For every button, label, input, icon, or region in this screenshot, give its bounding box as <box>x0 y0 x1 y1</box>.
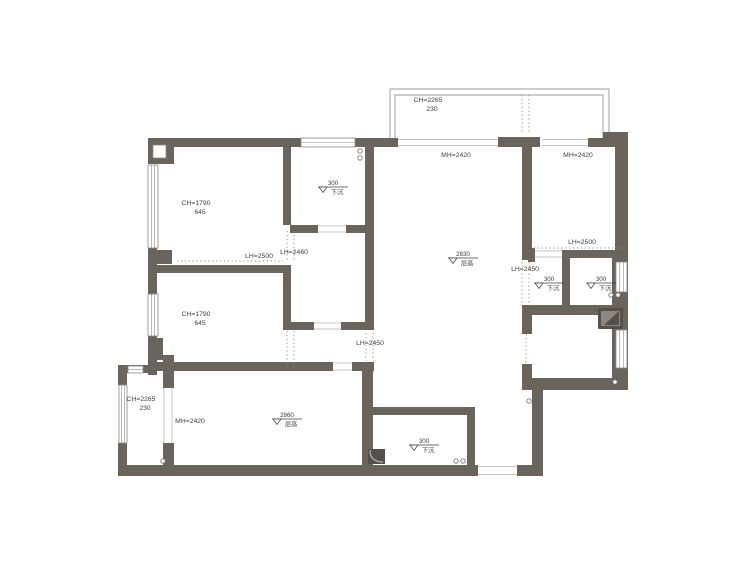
level-mark-caption: 下沉 <box>331 189 344 197</box>
small-circle-marker <box>461 459 465 463</box>
wall <box>532 390 543 465</box>
wall <box>355 138 398 147</box>
level-mark-caption: 下沉 <box>547 285 560 293</box>
level-mark-caption: 层高 <box>285 421 297 429</box>
level-mark-value: 2830 <box>456 251 470 258</box>
wall-niche <box>153 145 166 158</box>
level-mark-value: 300 <box>328 180 339 187</box>
dimension-label: LH=2450 <box>511 266 539 273</box>
wall <box>528 248 535 262</box>
small-circle-marker <box>161 459 165 463</box>
small-circle-marker <box>358 156 362 160</box>
small-circle-marker <box>454 459 458 463</box>
dimension-label: 645 <box>194 209 206 216</box>
wall <box>148 248 157 294</box>
level-mark-triangle-icon <box>319 187 327 193</box>
window <box>148 294 158 336</box>
wall <box>467 415 475 465</box>
wall <box>341 322 374 330</box>
wall <box>283 322 314 330</box>
wall <box>118 465 478 476</box>
level-mark-value: 300 <box>419 438 430 445</box>
wall <box>562 250 570 307</box>
small-circle-marker <box>616 293 620 297</box>
wall <box>157 265 288 273</box>
level-mark-value: 300 <box>544 276 555 283</box>
level-mark-caption: 层高 <box>461 260 473 268</box>
wall <box>365 138 374 330</box>
dimension-label: 645 <box>194 320 206 327</box>
small-circle-marker <box>358 149 362 153</box>
dimension-label: MH=2420 <box>563 152 593 159</box>
level-mark-triangle-icon <box>587 283 595 289</box>
dimension-label: MH=2420 <box>175 418 205 425</box>
window <box>148 165 158 248</box>
dimension-label: LH=2500 <box>568 239 596 246</box>
wall <box>523 378 628 390</box>
small-circle-marker <box>527 399 531 403</box>
small-circle-marker <box>609 293 613 297</box>
small-circle-marker <box>613 380 617 384</box>
wall <box>346 225 366 233</box>
dimension-label: 230 <box>139 405 151 412</box>
wall <box>283 147 291 225</box>
wall <box>373 407 475 415</box>
wall <box>615 132 628 252</box>
wall <box>157 362 333 371</box>
window <box>119 385 127 443</box>
wall <box>498 137 540 147</box>
level-mark-caption: 下沉 <box>422 447 435 455</box>
wall <box>157 250 172 264</box>
level-mark-triangle-icon <box>273 419 281 425</box>
dimension-label: MH=2420 <box>441 152 471 159</box>
level-mark-value: 2860 <box>280 412 294 419</box>
dimension-label: CH=2265 <box>414 97 443 104</box>
dimension-label: LH=2500 <box>245 253 273 260</box>
wall <box>283 265 291 330</box>
floor-plan-canvas: CH=2265230MH=2420MH=2420CH=1790645LH=250… <box>0 0 750 563</box>
level-mark-triangle-icon <box>449 258 457 264</box>
wall <box>588 138 605 147</box>
wall <box>163 355 174 388</box>
wall <box>522 308 532 334</box>
dimension-label: LH=2450 <box>356 340 384 347</box>
floor-plan: CH=2265230MH=2420MH=2420CH=1790645LH=250… <box>0 0 750 563</box>
level-mark-caption: 下沉 <box>599 285 612 293</box>
wall <box>522 137 532 260</box>
dimension-label: 230 <box>426 106 438 113</box>
wall <box>118 365 127 385</box>
level-mark-triangle-icon <box>535 283 543 289</box>
wall <box>148 338 163 360</box>
dimension-label: CH=1790 <box>182 311 211 318</box>
dimension-label: LH=2460 <box>280 249 308 256</box>
dimension-label: CH=2265 <box>127 396 156 403</box>
window <box>616 262 627 292</box>
level-mark-triangle-icon <box>410 445 418 451</box>
level-mark-value: 300 <box>596 276 607 283</box>
wall <box>517 465 543 476</box>
window <box>616 330 627 368</box>
dimension-label: CH=1790 <box>182 200 211 207</box>
wall <box>563 250 620 258</box>
